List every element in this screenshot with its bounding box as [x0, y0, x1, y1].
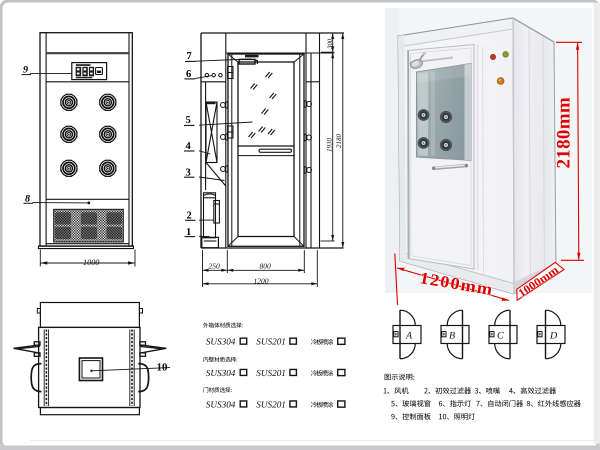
svg-text:10: 10: [157, 362, 169, 374]
svg-text:2180mm: 2180mm: [554, 97, 575, 168]
svg-text:SUS304: SUS304: [206, 368, 236, 378]
svg-text:SUS201: SUS201: [256, 337, 286, 347]
svg-text:2180: 2180: [335, 134, 343, 149]
svg-text:SUS304: SUS304: [206, 337, 236, 347]
svg-text:SUS201: SUS201: [256, 399, 286, 409]
svg-text:5: 5: [186, 115, 191, 126]
svg-text:C: C: [497, 330, 504, 341]
svg-text:1200: 1200: [254, 277, 269, 286]
svg-text:800: 800: [260, 261, 272, 270]
svg-text:8: 8: [25, 193, 30, 204]
svg-text:1000: 1000: [83, 258, 99, 267]
svg-text:1930: 1930: [326, 138, 334, 153]
svg-text:300: 300: [327, 38, 334, 50]
svg-text:7: 7: [187, 51, 192, 62]
svg-text:6: 6: [186, 69, 191, 80]
svg-text:B: B: [449, 330, 455, 341]
svg-text:250: 250: [209, 261, 221, 270]
svg-text:A: A: [405, 330, 413, 341]
svg-text:SUS201: SUS201: [256, 368, 286, 378]
svg-text:SUS304: SUS304: [206, 399, 236, 409]
svg-text:9: 9: [23, 65, 28, 76]
svg-text:D: D: [549, 330, 558, 341]
